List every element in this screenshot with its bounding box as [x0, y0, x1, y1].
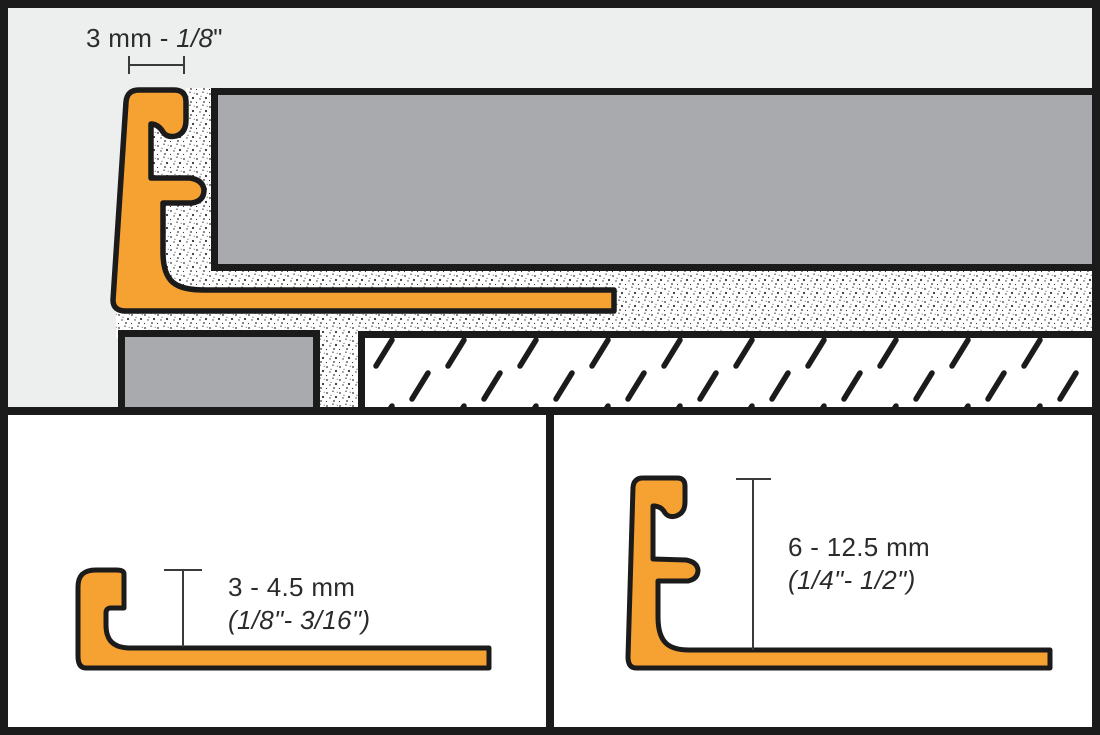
high-profile-height-label: 6 - 12.5 mm (1/4"- 1/2")	[788, 531, 930, 597]
installation-section-panel	[0, 0, 1100, 415]
low-profile-height-label: 3 - 4.5 mm (1/8"- 3/16")	[228, 571, 370, 637]
joint-width-label-unit-mark: "	[213, 23, 223, 53]
tile	[215, 92, 1100, 268]
joint-width-label-regular: 3 mm -	[86, 23, 176, 53]
substrate-hatch	[362, 335, 1100, 416]
low-profile-height-mm: 3 - 4.5 mm	[228, 571, 370, 604]
profile-diagram-page: 3 mm - 1/8" 3 - 4.5 mm (1/8"- 3/16") 6 -…	[0, 0, 1100, 735]
high-profile-height-inches: (1/4"- 1/2")	[788, 564, 930, 597]
substrate-edge-block	[122, 334, 317, 416]
joint-width-label-italic: 1/8	[176, 23, 213, 53]
low-profile-height-inches: (1/8"- 3/16")	[228, 604, 370, 637]
joint-width-label: 3 mm - 1/8"	[86, 22, 223, 55]
high-profile-height-mm: 6 - 12.5 mm	[788, 531, 930, 564]
